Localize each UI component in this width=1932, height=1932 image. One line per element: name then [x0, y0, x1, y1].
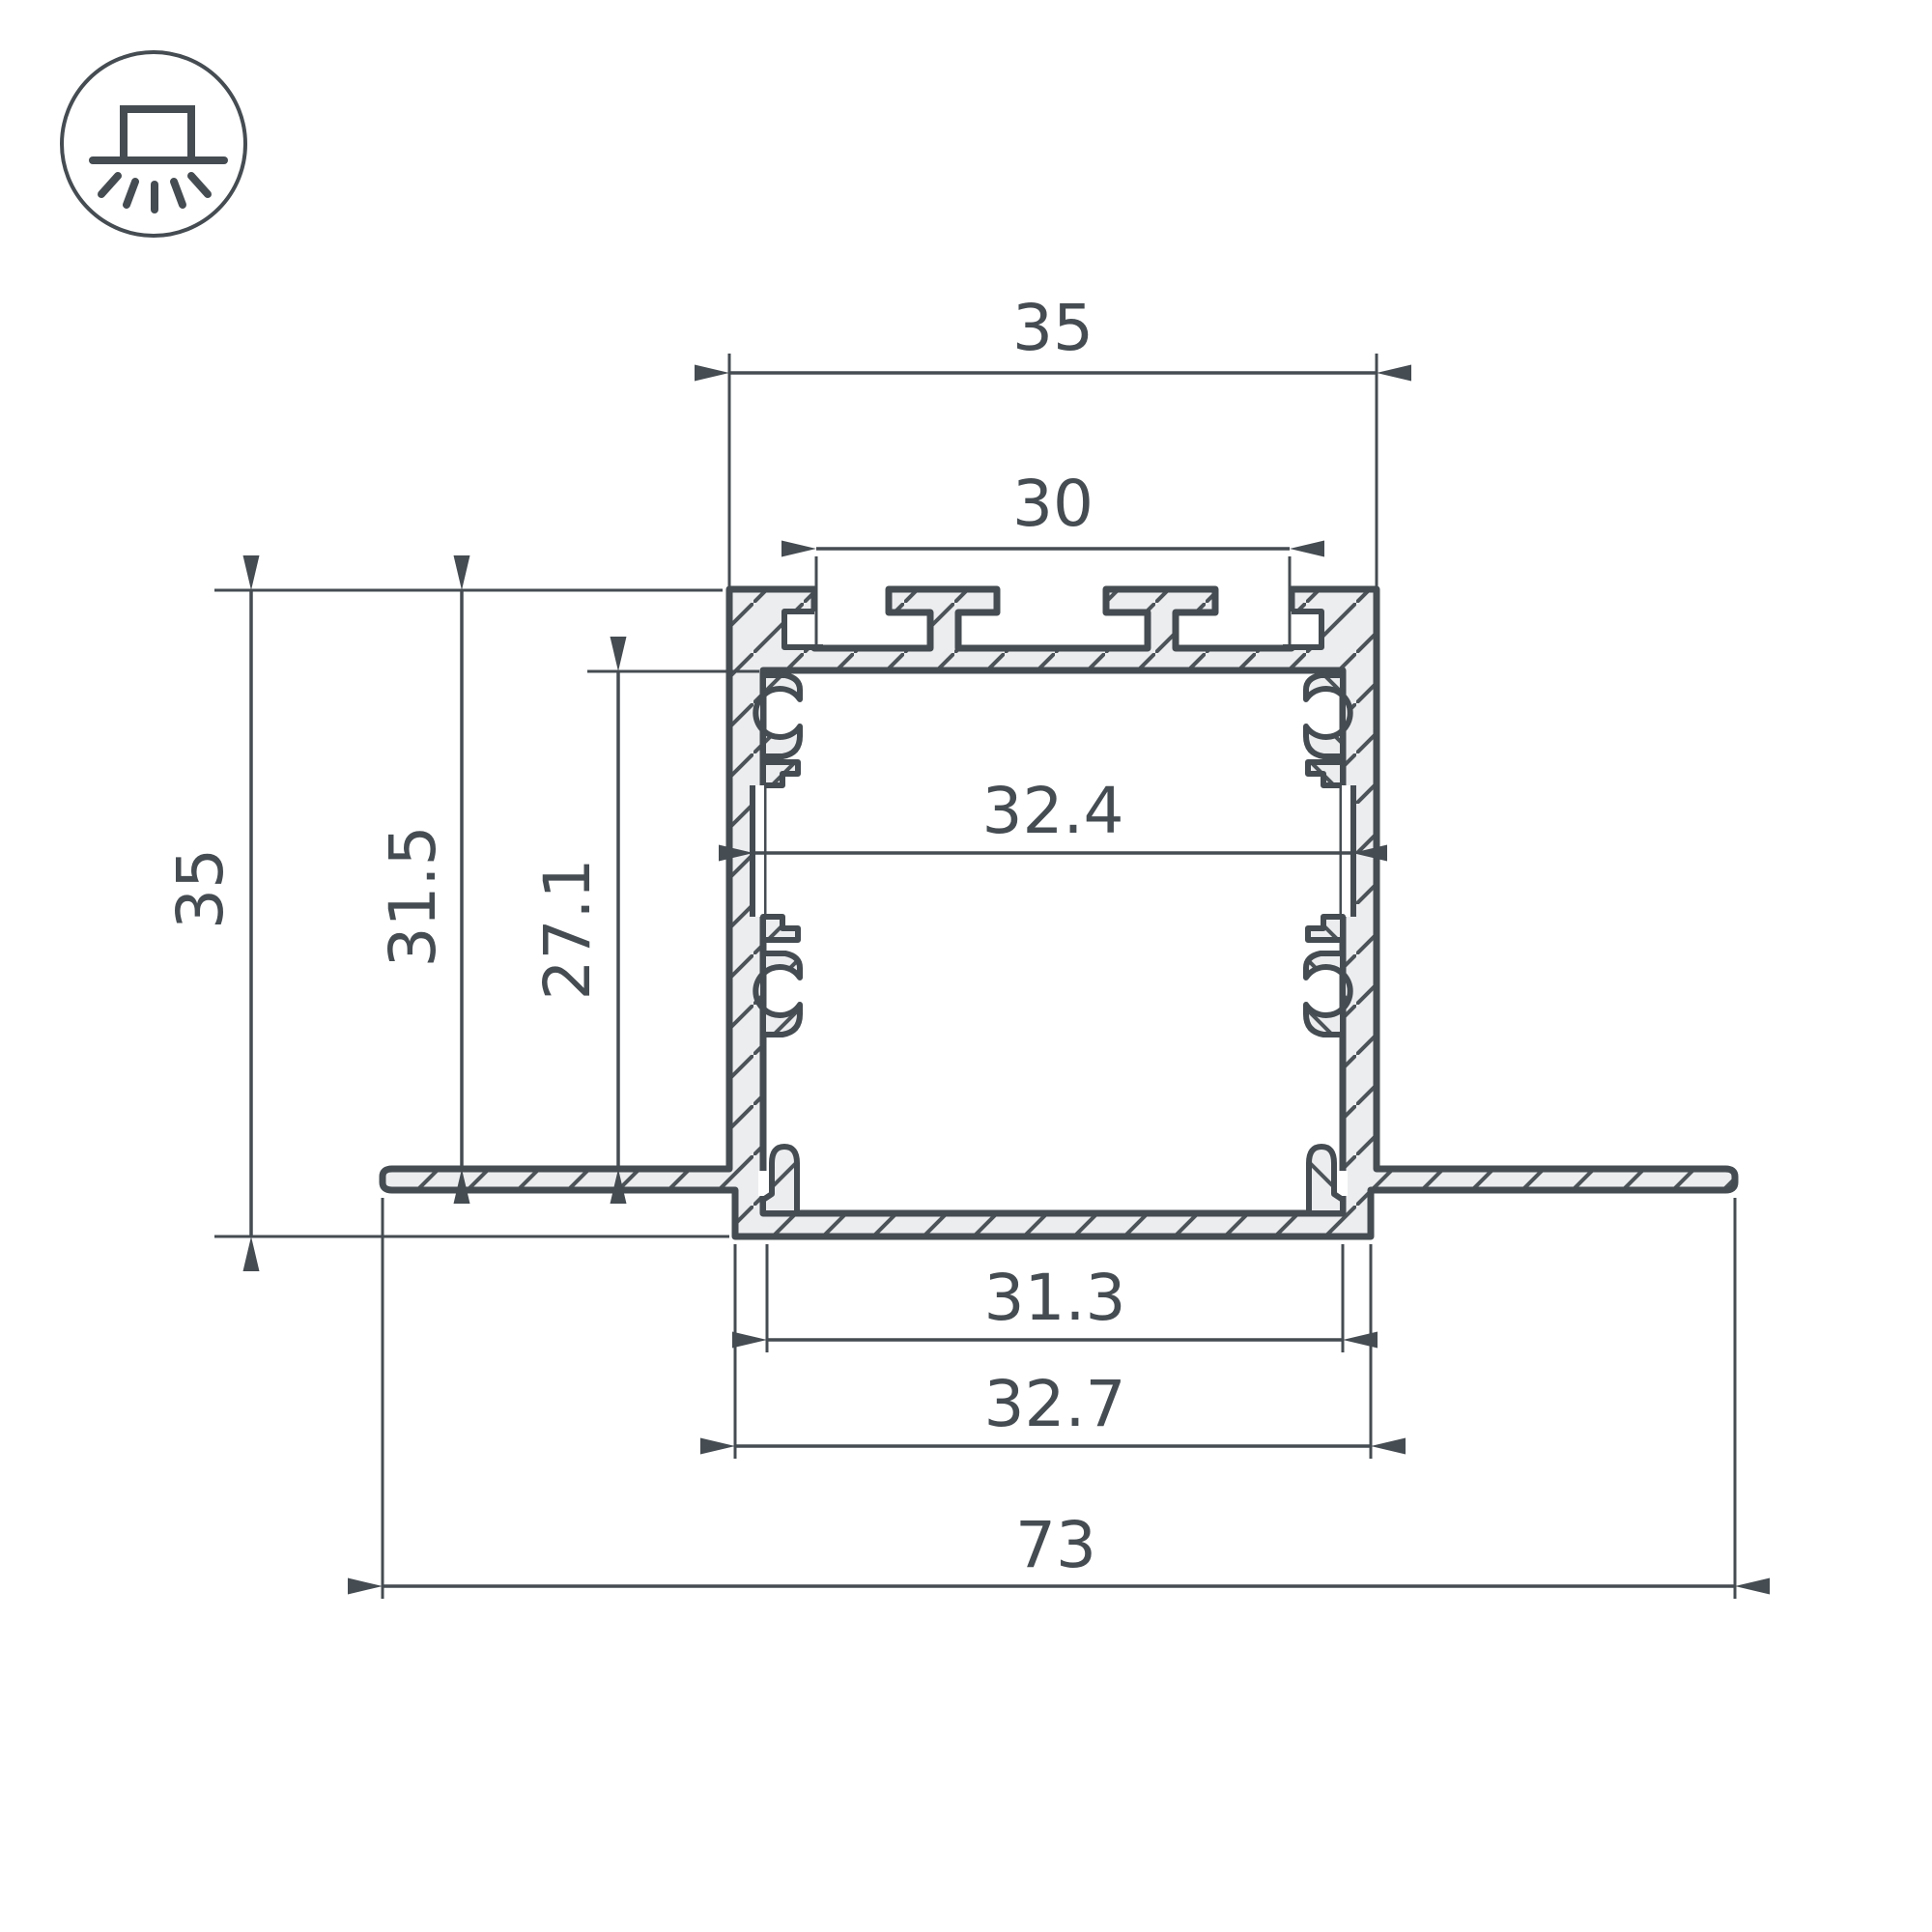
dimension-inner-width: 32.4 — [753, 774, 1352, 853]
dimension-inner-depth: 27.1 — [530, 671, 759, 1169]
screw-boss-upper — [755, 675, 800, 756]
dim-overall-height-value: 35 — [163, 848, 238, 929]
mount-type-icon — [62, 52, 245, 236]
drawing-page: 35 30 32.4 35 31.5 27.1 31.3 32.7 73 — [0, 0, 1932, 1932]
dim-top-slot-width-value: 30 — [1012, 467, 1094, 541]
light-rays-glyph — [101, 176, 208, 210]
dim-overall-width-value: 73 — [1015, 1508, 1096, 1582]
screw-boss-lower — [755, 953, 800, 1035]
dimension-top-slot-width: 30 — [816, 467, 1290, 645]
dim-bottom-opening-inner-value: 31.3 — [984, 1261, 1126, 1335]
dim-recess-depth-value: 31.5 — [376, 826, 450, 968]
recessed-box-glyph — [124, 109, 191, 160]
groove-tab-top — [763, 762, 798, 785]
dimension-top-width: 35 — [729, 291, 1377, 587]
profile-cross-section-drawing: 35 30 32.4 35 31.5 27.1 31.3 32.7 73 — [0, 0, 1932, 1932]
dimension-recess-depth: 31.5 — [376, 590, 462, 1169]
dim-top-width-value: 35 — [1012, 291, 1094, 365]
dim-inner-depth-value: 27.1 — [530, 859, 605, 1001]
groove-tab-bottom — [763, 917, 798, 940]
dimension-bottom-opening-inner: 31.3 — [767, 1244, 1343, 1352]
dim-inner-width-value: 32.4 — [982, 774, 1124, 848]
foot-lip-notch — [758, 1171, 769, 1196]
dim-bottom-opening-outer-value: 32.7 — [984, 1367, 1126, 1441]
